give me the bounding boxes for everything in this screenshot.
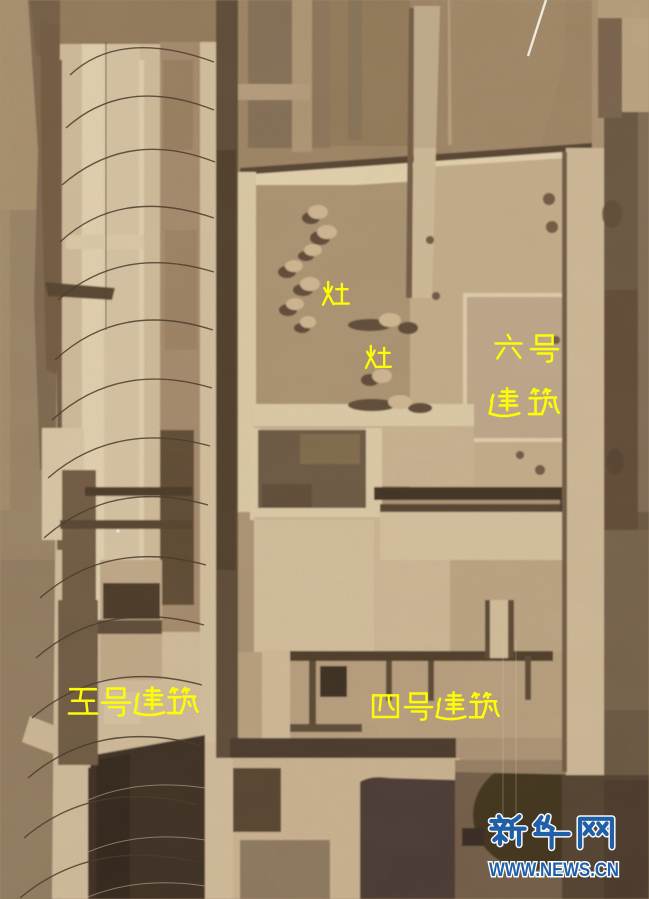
svg-text:WWW.NEWS.CN: WWW.NEWS.CN xyxy=(489,860,619,881)
